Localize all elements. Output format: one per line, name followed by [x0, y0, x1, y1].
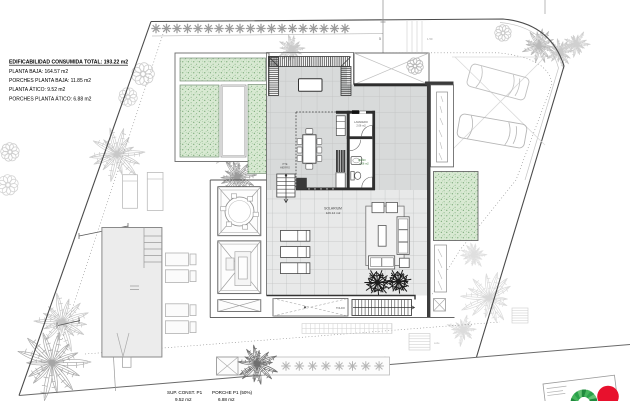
- svg-text:126.14 m2: 126.14 m2: [326, 211, 341, 215]
- svg-text:PLANTA ÁTICO: 9.52 m2: PLANTA ÁTICO: 9.52 m2: [9, 86, 66, 93]
- svg-text:5: 5: [379, 37, 381, 41]
- svg-text:TOLDO: TOLDO: [336, 306, 345, 310]
- svg-text:PTE: PTE: [282, 162, 287, 166]
- svg-text:PLANTA BAJA: 164.57 m2: PLANTA BAJA: 164.57 m2: [9, 69, 68, 75]
- svg-text:PORCHES PLANTA BAJA: 11.85 m2: PORCHES PLANTA BAJA: 11.85 m2: [9, 78, 91, 84]
- svg-text:6.88 m2: 6.88 m2: [218, 397, 235, 401]
- svg-text:HIERRO: HIERRO: [280, 166, 290, 170]
- svg-text:EDIFICABILIDAD CONSUMIDA TOTAL: EDIFICABILIDAD CONSUMIDA TOTAL: 193.22 m…: [9, 60, 128, 66]
- svg-text:4.06 m2: 4.06 m2: [359, 162, 369, 166]
- svg-text:sube: sube: [434, 341, 440, 345]
- svg-text:9.52 m2: 9.52 m2: [175, 397, 192, 401]
- svg-text:SUP. CONST. P1: SUP. CONST. P1: [167, 390, 203, 395]
- svg-text:PORCHE P1 (50%): PORCHE P1 (50%): [212, 390, 253, 395]
- svg-text:SOLARIUM: SOLARIUM: [324, 207, 342, 211]
- svg-text:PORCHES PLANTA ÁTICO: 6.88 m2: PORCHES PLANTA ÁTICO: 6.88 m2: [9, 95, 92, 102]
- svg-text:LAVADERO: LAVADERO: [354, 120, 368, 124]
- svg-text:1.50: 1.50: [427, 37, 433, 41]
- svg-text:2.06 m2: 2.06 m2: [356, 124, 366, 128]
